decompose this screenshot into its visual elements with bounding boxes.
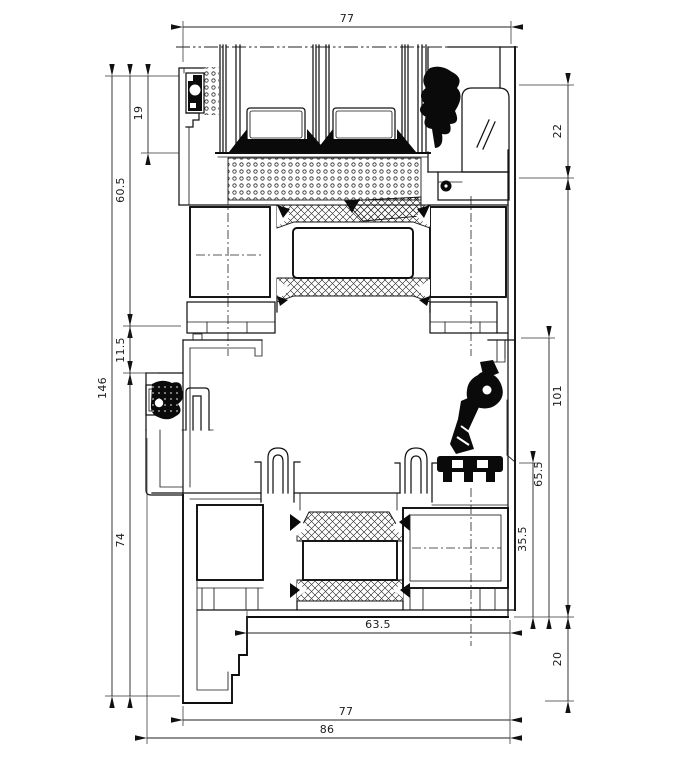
dim-lower-section-height: 74: [114, 373, 130, 696]
dim-label-lower-chamber-height: 35.5: [516, 526, 529, 552]
dim-label-lower-sash-height: 65.5: [532, 461, 545, 487]
dim-label-frame-inner-height: 101: [551, 385, 564, 407]
dim-label-lower-section-height: 74: [114, 533, 127, 548]
thermal-break-upper-bottom: [277, 278, 430, 306]
thermal-break-lower-top: [290, 512, 410, 541]
glider-clip: [186, 388, 209, 430]
dim-upper-sash-height: 60.5: [114, 76, 130, 326]
upper-sash-bottom-rails: [187, 296, 508, 333]
dim-label-upper-sash-height: 60.5: [114, 177, 127, 203]
glazing-spacer-bars: [247, 108, 395, 141]
thermal-break-lower-bottom: [290, 580, 410, 601]
interlock-loops: [255, 448, 438, 502]
dim-lower-chamber-height: 35.5: [516, 463, 533, 617]
lower-center-chamber: [303, 541, 397, 580]
upper-right-chamber: [430, 207, 506, 297]
dim-head-height: 22: [551, 85, 568, 178]
dimensions: 77 19 60.5 11.5 74 146 22: [96, 12, 574, 744]
dim-label-overall-height: 146: [96, 377, 109, 399]
glazing-bead: [462, 88, 509, 172]
dim-label-overall-width: 86: [320, 723, 335, 736]
dim-label-glazing-rebate: 19: [132, 106, 145, 121]
dim-overall-width: 86: [147, 723, 510, 738]
dim-label-center-gap: 11.5: [114, 337, 127, 363]
technical-section-drawing: 77 19 60.5 11.5 74 146 22: [0, 0, 691, 763]
left-hook-assembly: [146, 373, 213, 495]
dim-sill-depth: 20: [551, 617, 568, 701]
bead-slot: [477, 120, 495, 149]
centerlines: [176, 47, 518, 646]
drawing-canvas: 77 19 60.5 11.5 74 146 22: [0, 0, 691, 763]
thermal-break-upper-top: [277, 205, 430, 228]
glazing-sealant: [229, 129, 416, 152]
dim-bottom-width: 77: [183, 705, 510, 720]
upper-left-chamber: [190, 207, 270, 297]
dim-label-head-height: 22: [551, 124, 564, 139]
dim-frame-inner-height: 101: [551, 178, 568, 617]
upper-center-chamber: [293, 228, 413, 278]
dim-sill-inner-width: 63.5: [247, 618, 510, 633]
dim-center-gap: 11.5: [114, 326, 130, 373]
dim-top-width: 77: [183, 12, 511, 27]
glazing-unit: [216, 45, 430, 157]
dim-label-sill-depth: 20: [551, 652, 564, 667]
lower-sash-profile: [197, 448, 508, 610]
foam-strip: [204, 67, 219, 115]
glazing-support-foam-block: [228, 158, 421, 200]
dim-glazing-rebate: 19: [132, 76, 148, 153]
lower-left-chamber: [197, 505, 263, 580]
dim-overall-height: 146: [96, 76, 112, 696]
dim-lower-sash-height: 65.5: [532, 338, 549, 617]
upper-left-upstand: [179, 67, 219, 205]
lower-wing-gasket: [437, 340, 505, 482]
dim-label-bottom-width: 77: [339, 705, 354, 718]
dim-label-sill-inner-width: 63.5: [365, 618, 391, 631]
dim-label-top-width: 77: [340, 12, 355, 25]
